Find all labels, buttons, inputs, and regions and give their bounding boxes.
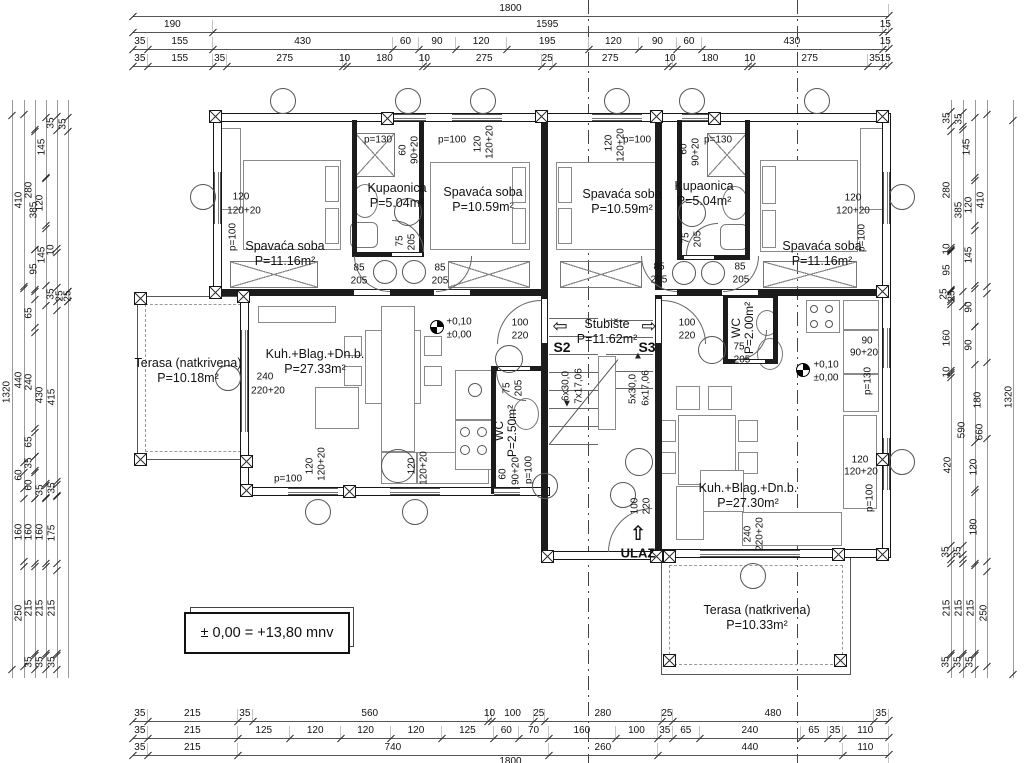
side-dimension-value: 120	[964, 197, 975, 214]
interior-wall	[745, 120, 750, 259]
structural-column	[209, 110, 222, 123]
stair-tread-line	[549, 444, 598, 445]
dimension-row-bottom-2: 35215740260440110	[133, 743, 889, 756]
dimension-segment: 110	[843, 726, 889, 739]
room-area: P=2.00m²	[743, 302, 756, 354]
axis-circle	[470, 88, 496, 114]
room-name: Kupaonica	[367, 181, 426, 196]
structural-column	[663, 654, 676, 667]
opening-dimension-label: 75	[681, 232, 692, 243]
furniture	[381, 306, 415, 452]
opening-dimension-label: 120	[233, 192, 250, 203]
furniture	[708, 386, 732, 410]
furniture	[676, 386, 700, 410]
dimension-value: 35	[134, 36, 145, 48]
axis-circle	[672, 261, 696, 285]
opening-dimension-label: 240	[257, 372, 274, 383]
structural-column	[209, 286, 222, 299]
dimension-segment: 60	[677, 37, 702, 50]
dimension-segment: 430	[213, 37, 394, 50]
dimension-value: 215	[184, 725, 201, 737]
opening-dimension-label: 100	[679, 318, 696, 329]
furniture	[843, 300, 879, 330]
room-name: Kuh.+Blag.+Dn.b.	[699, 481, 798, 496]
window	[883, 328, 890, 368]
dimension-row-top-1: 190159515	[133, 20, 889, 33]
opening-dimension-label: 120	[407, 458, 418, 475]
opening-dimension-label: ±0,00	[447, 330, 472, 341]
dimension-value: 60	[683, 36, 694, 48]
stair-dimension-label: 7x17,06	[574, 368, 585, 404]
appliance-circle	[477, 427, 487, 437]
room-area: P=5.04m²	[367, 196, 426, 211]
dimension-value: 120	[408, 725, 425, 737]
structural-column	[834, 654, 847, 667]
structural-column	[134, 453, 147, 466]
furniture	[424, 336, 442, 356]
side-dimension-value: 65	[24, 307, 35, 318]
opening-dimension-label: 120	[473, 136, 484, 153]
side-dimension-value: 145	[964, 247, 975, 264]
dimension-row-top-3: 351553527510180102752527510180102753515	[133, 54, 889, 67]
appliance-circle	[460, 445, 470, 455]
appliance-circle	[810, 320, 818, 328]
level-benchmark-icon	[796, 363, 810, 377]
door-opening	[656, 299, 661, 343]
dimension-segment: 275	[752, 54, 868, 67]
dimension-value: 440	[742, 742, 759, 754]
door-opening	[392, 253, 422, 256]
opening-dimension-label: 85	[653, 262, 664, 273]
opening-dimension-label: p=130	[364, 135, 392, 146]
dimension-value: 60	[501, 725, 512, 737]
dimension-value: 120	[307, 725, 324, 737]
side-dimension-value: 60	[24, 479, 35, 490]
dimension-segment: 215	[148, 709, 238, 722]
axis-circle	[402, 260, 426, 284]
opening-dimension-label: 120	[852, 455, 869, 466]
side-dimension-line	[963, 100, 964, 678]
window	[390, 114, 426, 121]
dimension-value: 430	[294, 36, 311, 48]
room-name: Stubište	[577, 317, 638, 332]
axis-circle	[305, 499, 331, 525]
crossed-furniture	[560, 261, 642, 288]
dimension-value: 1595	[536, 19, 558, 31]
side-dimension-value: 120	[969, 459, 980, 476]
side-dimension-value: 145	[37, 139, 48, 156]
side-dimension-value: 95	[942, 264, 953, 275]
dimension-segment: 35	[658, 726, 673, 739]
opening-dimension-label: 120+20	[485, 125, 496, 159]
side-dimension-value: 215	[966, 600, 977, 617]
dimension-value: 480	[765, 708, 782, 720]
dimension-value: 100	[628, 725, 645, 737]
dimension-value: 275	[801, 53, 818, 65]
dimension-value: 180	[702, 53, 719, 65]
window	[241, 330, 248, 432]
opening-dimension-label: 220	[512, 331, 529, 342]
dimension-value: 160	[573, 725, 590, 737]
dimension-segment: 275	[553, 54, 669, 67]
opening-dimension-label: p=100	[438, 135, 466, 146]
room-area: P=27.30m²	[699, 496, 798, 511]
dimension-value: 35	[134, 725, 145, 737]
dimension-segment: 110	[843, 743, 889, 756]
opening-dimension-label: 120+20	[836, 206, 870, 217]
entrance-label: ULAZ	[621, 546, 656, 561]
room-label: WCP=2.50m²	[493, 405, 519, 457]
dimension-value: 90	[652, 36, 663, 48]
side-dimension-value: 660	[975, 424, 986, 441]
stair-rail	[598, 356, 616, 430]
axis-circle	[698, 336, 726, 364]
window	[700, 550, 800, 557]
stair-dimension-label: 6x17,06	[641, 370, 652, 406]
dimension-segment: 125	[442, 726, 495, 739]
side-dimension-value: 250	[979, 605, 990, 622]
axis-circle	[373, 260, 397, 284]
dimension-value: 275	[476, 53, 493, 65]
opening-dimension-label: 100	[512, 318, 529, 329]
stair-dimension-label: 5x30,0	[628, 374, 639, 404]
dimension-value: 35	[869, 53, 880, 65]
opening-dimension-label: p=100	[228, 223, 239, 251]
room-name: Kupaonica	[674, 179, 733, 194]
dimension-value: 180	[376, 53, 393, 65]
opening-dimension-label: p=100	[274, 474, 302, 485]
dimension-segment: 1595	[213, 20, 883, 33]
appliance-circle	[460, 427, 470, 437]
opening-dimension-label: 205	[407, 234, 418, 251]
structural-column	[240, 455, 253, 468]
dimension-segment: 60	[494, 726, 519, 739]
dimension-segment: 120	[456, 37, 506, 50]
furniture	[843, 374, 879, 412]
axis-circle	[804, 88, 830, 114]
side-dimension-value: 430	[35, 387, 46, 404]
opening-dimension-label: 60	[498, 468, 509, 479]
opening-dimension-label: 205	[351, 276, 368, 287]
opening-dimension-label: 100	[630, 498, 641, 515]
floor-plan-canvas: ± 0,00 = +13,80 mnv ▼▲Spavaća sobaP=11.1…	[0, 0, 1024, 763]
appliance-circle	[477, 445, 487, 455]
room-label: Terasa (natkrivena)P=10.18m²	[135, 356, 242, 386]
room-name: Kuh.+Blag.+Dn.b.	[266, 347, 365, 362]
dimension-value: 190	[164, 19, 181, 31]
window	[288, 488, 338, 495]
axis-circle	[190, 184, 216, 210]
window	[452, 114, 502, 121]
opening-dimension-label: p=130	[863, 367, 874, 395]
dimension-segment: 90	[639, 37, 677, 50]
opening-dimension-label: p=130	[704, 135, 732, 146]
opening-dimension-label: 120+20	[419, 451, 430, 485]
opening-dimension-label: 120	[305, 458, 316, 475]
opening-dimension-label: 120+20	[317, 447, 328, 481]
dimension-segment: 125	[238, 726, 291, 739]
dimension-value: 90	[431, 36, 442, 48]
side-dimension-line	[975, 100, 976, 678]
axis-circle	[270, 88, 296, 114]
dimension-segment: 60	[393, 37, 418, 50]
dimension-value: 215	[184, 708, 201, 720]
room-label: Kuh.+Blag.+Dn.b.P=27.30m²	[699, 481, 798, 511]
axis-circle	[740, 563, 766, 589]
dimension-value: 35	[239, 708, 250, 720]
side-dimension-value: 215	[954, 600, 965, 617]
dimension-value: 430	[783, 36, 800, 48]
room-label: Spavaća sobaP=10.59m²	[443, 185, 522, 215]
dimension-segment: 25	[662, 709, 673, 722]
side-dimension-value: 160	[35, 524, 46, 541]
side-dimension-value: 65	[24, 436, 35, 447]
side-dimension-value: 1320	[1004, 386, 1015, 408]
structural-column	[134, 292, 147, 305]
side-dimension-value: 120	[35, 195, 46, 212]
appliance-circle	[810, 305, 818, 313]
structural-column	[876, 285, 889, 298]
opening-dimension-label: 220+20	[755, 517, 766, 551]
room-label: KupaonicaP=5.04m²	[367, 181, 426, 211]
furniture	[258, 306, 336, 323]
room-name: Spavaća soba	[582, 187, 661, 202]
structural-column	[535, 110, 548, 123]
dimension-value: 35	[134, 708, 145, 720]
dimension-value: 25	[542, 53, 553, 65]
dimension-value: 275	[276, 53, 293, 65]
dimension-value: 100	[504, 708, 521, 720]
dimension-segment: 190	[133, 20, 213, 33]
dimension-value: 35	[829, 725, 840, 737]
room-area: P=27.33m²	[266, 362, 365, 377]
dimension-row-top-0: 1800	[133, 4, 889, 17]
opening-dimension-label: 120+20	[844, 467, 878, 478]
dimension-segment: 240	[700, 726, 801, 739]
structural-column	[708, 112, 721, 125]
dimension-value: 25	[661, 708, 672, 720]
opening-dimension-label: 85	[734, 262, 745, 273]
axis-circle	[604, 88, 630, 114]
side-dimension-value: 280	[24, 182, 35, 199]
dimension-value: 120	[357, 725, 374, 737]
side-dimension-value: 590	[957, 422, 968, 439]
opening-dimension-label: 120	[845, 193, 862, 204]
room-name: Spavaća soba	[443, 185, 522, 200]
dimension-value: 125	[459, 725, 476, 737]
opening-dimension-label: p=100	[623, 135, 651, 146]
dimension-segment: 180	[347, 54, 423, 67]
opening-dimension-label: 85	[353, 263, 364, 274]
dimension-segment: 155	[148, 54, 213, 67]
window	[390, 488, 440, 495]
dimension-value: 120	[605, 36, 622, 48]
dimension-segment: 430	[702, 37, 883, 50]
axis-circle	[495, 345, 523, 373]
dimension-value: 110	[857, 725, 873, 737]
dimension-value: 155	[171, 36, 188, 48]
dimension-segment: 65	[673, 726, 700, 739]
side-dimension-line	[987, 100, 988, 678]
structural-column	[650, 110, 663, 123]
opening-dimension-label: 205	[733, 275, 750, 286]
room-area: P=10.59m²	[443, 200, 522, 215]
dimension-segment: 35	[133, 37, 148, 50]
interior-wall	[773, 293, 778, 364]
dimension-segment: 155	[148, 37, 213, 50]
room-label: KupaonicaP=5.04m²	[674, 179, 733, 209]
dimension-segment: 195	[507, 37, 589, 50]
dimension-segment: 180	[673, 54, 749, 67]
side-dimension-value: 385	[954, 202, 965, 219]
room-label: Kuh.+Blag.+Dn.b.P=27.33m²	[266, 347, 365, 377]
room-area: P=11.16m²	[782, 254, 861, 269]
opening-dimension-label: 205	[693, 231, 704, 248]
dimension-value: 65	[808, 725, 819, 737]
opening-dimension-label: 75	[395, 235, 406, 246]
door-opening	[542, 299, 547, 343]
window	[592, 114, 642, 121]
furniture	[762, 210, 776, 248]
dimension-segment: 120	[589, 37, 639, 50]
side-dimension-value: 215	[24, 600, 35, 617]
dimension-segment: 215	[148, 726, 238, 739]
dimension-segment: 120	[290, 726, 340, 739]
structural-column	[876, 453, 889, 466]
structural-column	[876, 548, 889, 561]
room-area: P=10.59m²	[582, 202, 661, 217]
dimension-value: 155	[171, 53, 188, 65]
axis-circle	[889, 449, 915, 475]
dimension-value: 1800	[499, 3, 521, 15]
dimension-segment: 90	[419, 37, 457, 50]
structural-column	[832, 548, 845, 561]
opening-dimension-label: 75	[733, 342, 744, 353]
dimension-value: 240	[741, 725, 758, 737]
section-marker-s2: S2	[553, 339, 570, 355]
dimension-row-top-2: 351554306090120195120906043015	[133, 37, 889, 50]
dimension-segment: 120	[391, 726, 441, 739]
opening-dimension-label: 205	[734, 355, 751, 366]
dimension-row-bottom-1: 3521512512012012012560701601003565240653…	[133, 726, 889, 739]
dimension-segment: 35	[133, 709, 148, 722]
opening-dimension-label: p=100	[524, 456, 535, 484]
dimension-segment: 100	[492, 709, 534, 722]
opening-dimension-label: 90+20	[410, 136, 421, 164]
level-note-text: ± 0,00 = +13,80 mnv	[201, 625, 334, 641]
opening-dimension-label: 90+20	[691, 138, 702, 166]
stair-dimension-label: 6x30,0	[561, 371, 572, 401]
room-area: P=10.33m²	[704, 618, 811, 633]
room-label: Terasa (natkrivena)P=10.33m²	[704, 603, 811, 633]
dimension-row-bottom-3: 1800	[133, 757, 889, 763]
window	[494, 488, 520, 495]
furniture	[762, 166, 776, 204]
side-dimension-value: 410	[976, 192, 987, 209]
axis-circle	[701, 261, 725, 285]
dimension-segment: 65	[801, 726, 828, 739]
opening-dimension-label: 85	[434, 263, 445, 274]
dimension-segment: 215	[148, 743, 238, 756]
dimension-value: 35	[134, 742, 145, 754]
dimension-value: 25	[533, 708, 544, 720]
dimension-segment: 100	[616, 726, 658, 739]
dimension-segment: 120	[341, 726, 391, 739]
room-area: P=11.62m²	[577, 332, 638, 347]
room-area: P=10.18m²	[135, 371, 242, 386]
opening-dimension-label: ±0,00	[814, 373, 839, 384]
axis-circle	[395, 88, 421, 114]
opening-dimension-label: p=100	[865, 484, 876, 512]
opening-dimension-label: +0,10	[813, 360, 838, 371]
opening-dimension-label: 205	[514, 380, 525, 397]
stair-tread-line	[549, 426, 598, 427]
side-dimension-value: 215	[35, 600, 46, 617]
exterior-wall	[213, 113, 891, 122]
opening-dimension-label: 120+20	[227, 206, 261, 217]
opening-dimension-label: 60	[679, 143, 690, 154]
room-label: Spavaća sobaP=10.59m²	[582, 187, 661, 217]
dimension-segment: 35	[133, 743, 148, 756]
furniture	[860, 128, 884, 210]
opening-dimension-label: 120	[604, 135, 615, 152]
side-dimension-value: 180	[969, 519, 980, 536]
side-dimension-value: 215	[47, 600, 58, 617]
entrance-arrow-icon: ⇧	[630, 524, 647, 544]
dimension-value: 110	[857, 742, 873, 754]
section-arrow-left-icon: ⇦	[552, 316, 567, 336]
dimension-value: 125	[255, 725, 272, 737]
room-area: P=5.04m²	[674, 194, 733, 209]
dimension-value: 70	[528, 725, 539, 737]
dimension-value: 195	[539, 36, 556, 48]
room-name: Spavaća soba	[782, 239, 861, 254]
axis-circle	[625, 448, 653, 476]
side-dimension-value: 90	[964, 339, 975, 350]
section-marker-s3: S3	[638, 339, 655, 355]
room-label: Spavaća sobaP=11.16m²	[782, 239, 861, 269]
opening-dimension-label: +0,10	[446, 317, 471, 328]
axis-circle	[532, 473, 558, 499]
door-opening	[684, 256, 714, 259]
axis-circle	[402, 499, 428, 525]
appliance-circle	[825, 320, 833, 328]
dimension-segment: 35	[213, 54, 228, 67]
furniture	[738, 420, 758, 442]
dimension-value: 35	[659, 725, 670, 737]
side-dimension-value: 160	[24, 524, 35, 541]
dimension-value: 215	[184, 742, 201, 754]
dimension-segment: 260	[549, 743, 658, 756]
dimension-value: 35	[876, 708, 887, 720]
side-dimension-value: 280	[942, 182, 953, 199]
furniture	[325, 208, 339, 244]
structural-column	[663, 550, 676, 563]
level-note-box: ± 0,00 = +13,80 mnv	[184, 612, 350, 654]
stair-tread-line	[549, 408, 598, 409]
opening-dimension-label: 205	[432, 276, 449, 287]
room-area: P=11.16m²	[245, 254, 324, 269]
dimension-value: 740	[385, 742, 402, 754]
side-dimension-value: 415	[47, 389, 58, 406]
dimension-value: 65	[680, 725, 691, 737]
room-label: Spavaća sobaP=11.16m²	[245, 239, 324, 269]
opening-dimension-label: 90+20	[511, 457, 522, 485]
dimension-segment: 1800	[133, 4, 889, 17]
section-arrow-right-icon: ⇨	[641, 316, 656, 336]
side-dimension-value: 160	[942, 330, 953, 347]
furniture	[325, 166, 339, 202]
